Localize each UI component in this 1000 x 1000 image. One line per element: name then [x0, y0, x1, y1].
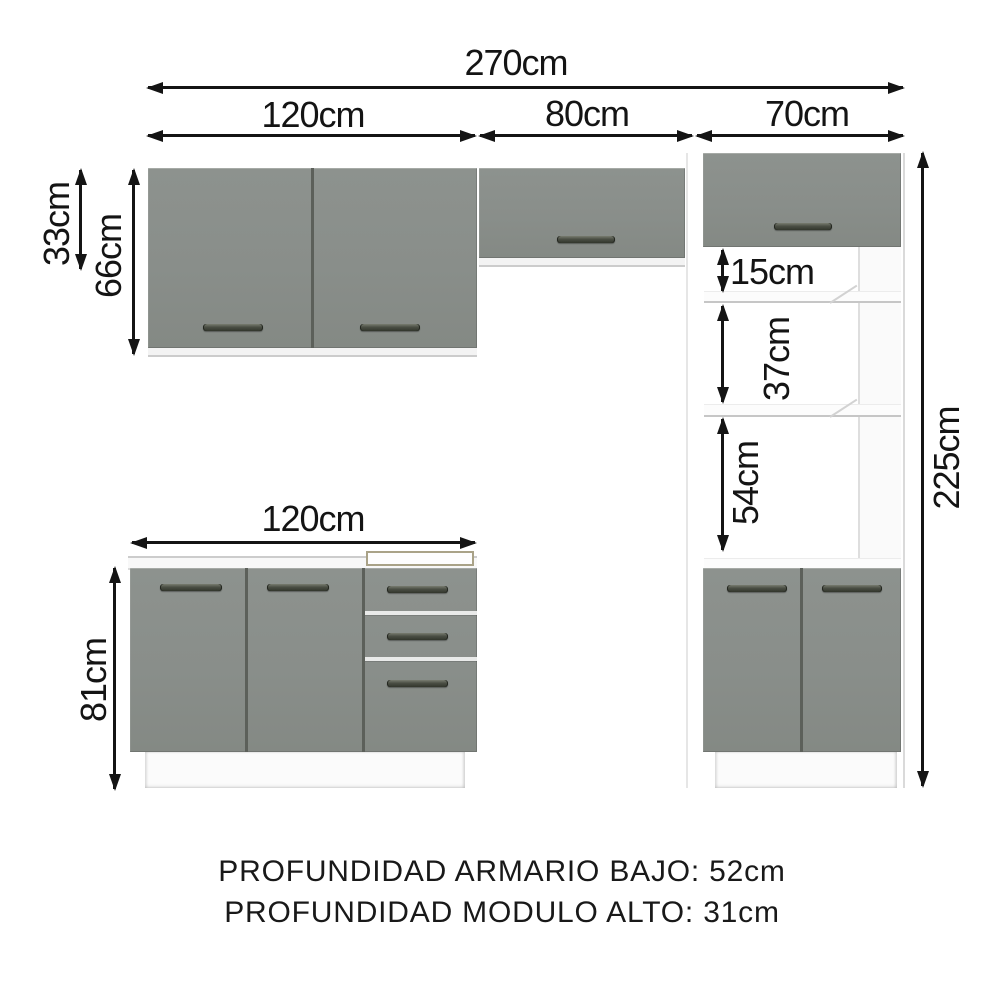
label-upper-right-width: 70cm	[765, 96, 849, 132]
dimension-line-total-width	[148, 86, 903, 89]
tall-cabinet-lower-left-handle	[727, 585, 787, 592]
tall-cabinet-lower-right-handle	[822, 585, 882, 592]
dimension-line-upper-left-height	[132, 170, 135, 354]
label-upper-mid-width: 80cm	[545, 96, 629, 132]
wall-cabinet-bottom-panel	[148, 348, 477, 357]
tall-cabinet-lower-door-divider	[800, 568, 803, 752]
label-upper-left-height: 66cm	[91, 214, 127, 298]
base-cabinet-door-divider	[245, 568, 248, 752]
base-cabinet-drawer-3-handle	[387, 680, 448, 687]
label-upper-left-width: 120cm	[261, 97, 364, 133]
dimension-line-upper-right-width	[697, 134, 903, 137]
wall-cabinet-left-door-handle	[203, 324, 263, 331]
label-niche-middle: 37cm	[759, 317, 795, 401]
mid-cabinet-door-handle	[557, 236, 615, 243]
base-cabinet-drawer-gap-2	[365, 657, 477, 661]
dimension-line-base-width	[132, 541, 475, 544]
depth-note-base: PROFUNDIDAD ARMARIO BAJO: 52cm	[218, 857, 785, 887]
label-base-width: 120cm	[261, 501, 364, 537]
mid-cabinet-front	[479, 168, 685, 258]
mid-cabinet-bottom-panel	[479, 258, 685, 267]
dimension-line-upper-mid-height	[79, 170, 82, 269]
label-upper-mid-height: 33cm	[39, 182, 75, 266]
label-total-height: 225cm	[929, 406, 965, 509]
tall-cabinet-shelf-1	[704, 291, 901, 303]
wall-cabinet-door-divider	[311, 168, 314, 348]
label-niche-bottom: 54cm	[728, 441, 764, 525]
base-cabinet-drawer-1-handle	[387, 586, 448, 593]
label-total-width: 270cm	[464, 45, 567, 81]
depth-note-tall: PROFUNDIDAD MODULO ALTO: 31cm	[224, 898, 780, 928]
tall-cabinet-kick-plate	[715, 752, 897, 788]
dimension-line-upper-mid-width	[480, 134, 692, 137]
kitchen-dimension-diagram: 270cm 120cm 80cm 70cm 33cm 66cm 15cm 37c…	[0, 0, 1000, 1000]
dimension-line-niche-bottom	[721, 419, 724, 550]
wall-cabinet-right-door-handle	[360, 324, 420, 331]
dimension-line-niche-top	[721, 250, 724, 291]
tall-cabinet-top-door-handle	[774, 223, 832, 230]
base-cabinet-right-door-handle	[267, 584, 329, 591]
base-cabinet-drawer-2-handle	[387, 633, 448, 640]
base-cabinet-drawer-gap-1	[365, 611, 477, 615]
dimension-line-niche-middle	[721, 306, 724, 402]
base-cabinet-left-door-handle	[160, 584, 222, 591]
label-niche-top: 15cm	[730, 254, 814, 290]
tall-cabinet-shelf-2	[704, 404, 901, 417]
label-base-height: 81cm	[76, 638, 112, 722]
tall-cabinet-top-door	[703, 153, 901, 247]
base-cabinet-kick-plate	[145, 752, 465, 788]
base-cabinet-sink-opening	[366, 551, 474, 566]
dimension-line-total-height	[921, 153, 924, 786]
